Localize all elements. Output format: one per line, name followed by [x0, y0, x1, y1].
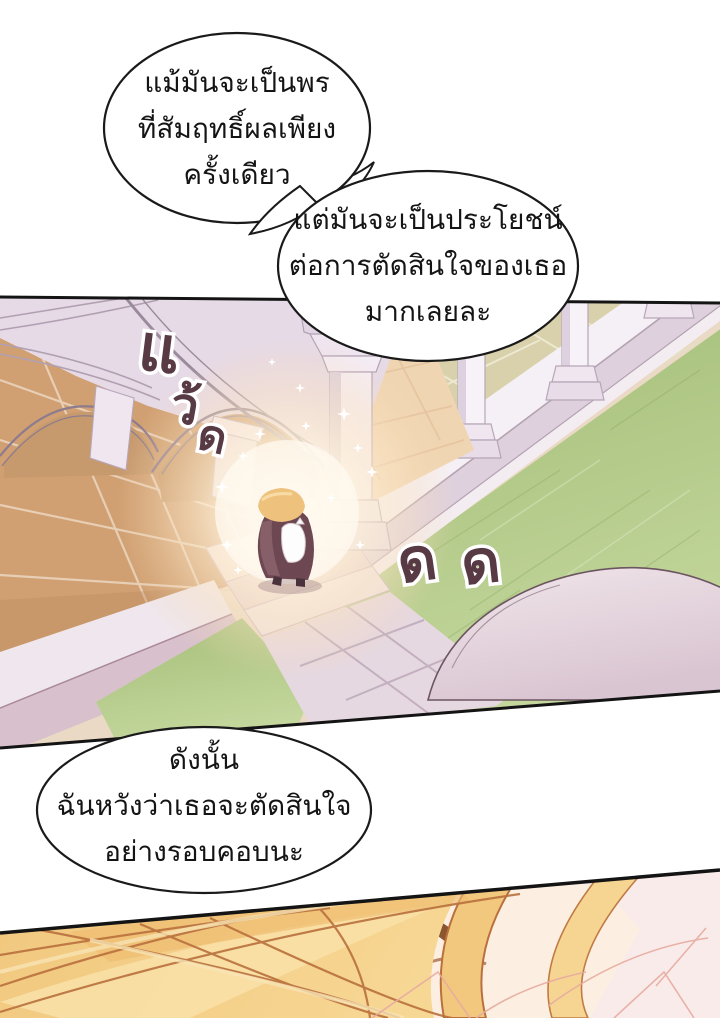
speech-bubble-2	[278, 171, 578, 361]
figure-shadow	[258, 578, 322, 594]
sfx-glyph-grass-2: ด	[458, 527, 504, 598]
speech-bubble-3	[37, 727, 371, 893]
comic-artwork: แ ว้ ด ด ด	[0, 0, 720, 1018]
comic-page: แ ว้ ด ด ด	[0, 0, 720, 1018]
